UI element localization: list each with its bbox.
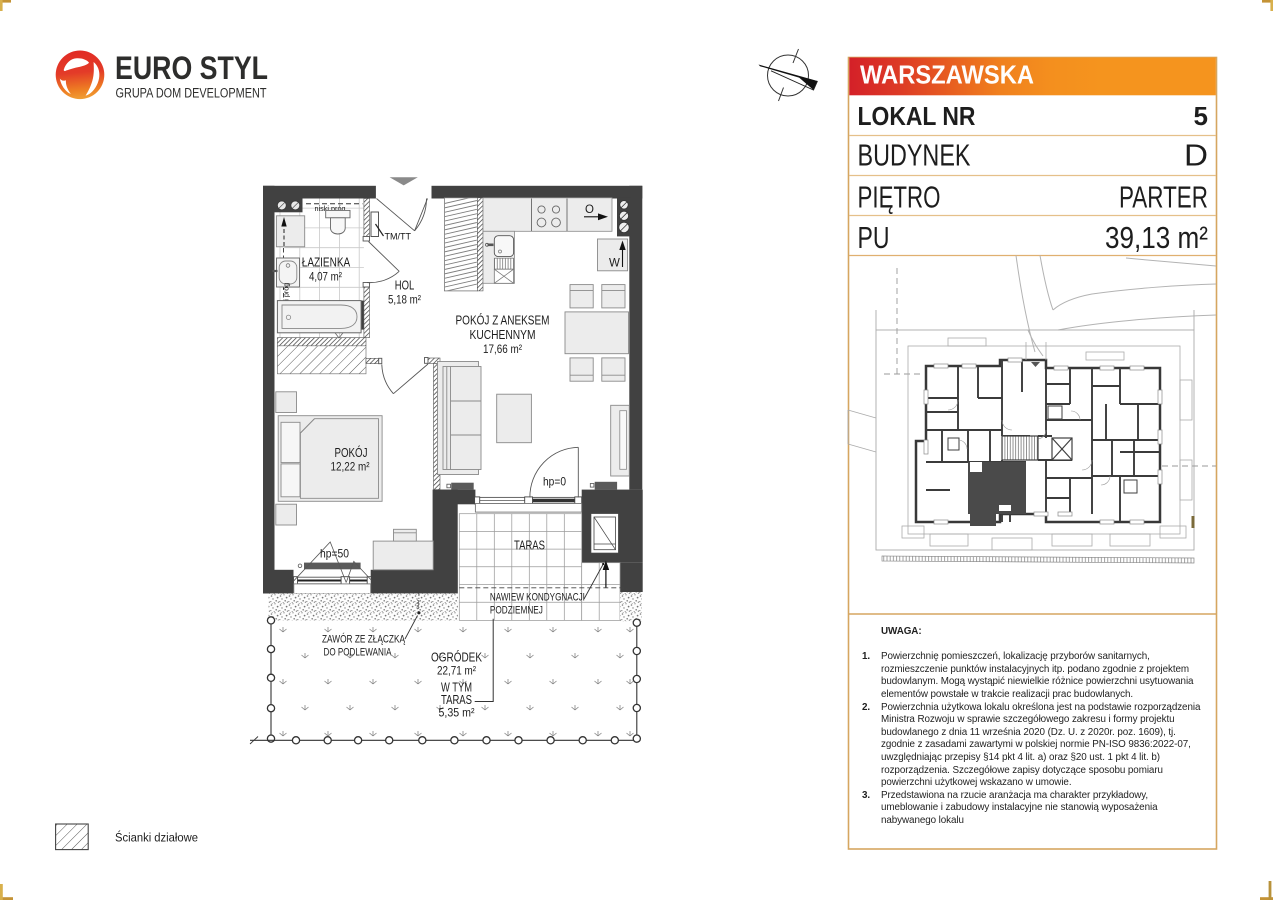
svg-text:12,22 m²: 12,22 m² [331,460,370,474]
svg-text:ŁAZIENKA: ŁAZIENKA [302,256,351,270]
svg-text:hp=0: hp=0 [543,475,566,489]
svg-text:TM/TT: TM/TT [385,232,412,242]
svg-text:GRUPA DOM DEVELOPMENT: GRUPA DOM DEVELOPMENT [116,86,267,102]
svg-text:PU: PU [858,220,890,255]
svg-text:POKÓJ Z ANEKSEM: POKÓJ Z ANEKSEM [456,313,550,328]
svg-text:PARTER: PARTER [1119,180,1208,215]
svg-text:NAWIEW KONDYGNACJI: NAWIEW KONDYGNACJI [490,592,585,604]
svg-text:DO PODLEWANIA: DO PODLEWANIA [324,647,393,659]
svg-text:LOKAL NR: LOKAL NR [858,101,976,131]
svg-text:EURO STYL: EURO STYL [115,50,268,86]
svg-text:OGRÓDEK: OGRÓDEK [431,650,482,665]
svg-text:Ścianki działowe: Ścianki działowe [115,830,198,845]
svg-text:WARSZAWSKA: WARSZAWSKA [860,60,1034,90]
svg-text:5,18 m²: 5,18 m² [388,293,421,307]
svg-text:5,35 m²: 5,35 m² [439,706,475,720]
svg-text:W: W [609,258,620,270]
svg-text:TARAS: TARAS [514,539,545,553]
svg-text:BUDYNEK: BUDYNEK [858,137,971,172]
svg-text:O: O [585,204,594,216]
svg-text:KUCHENNYM: KUCHENNYM [470,328,536,342]
svg-text:4,07 m²: 4,07 m² [309,270,342,284]
svg-text:HOL: HOL [395,279,415,293]
svg-text:POKÓJ: POKÓJ [335,445,368,460]
svg-text:D: D [1184,137,1208,172]
svg-text:17,66 m²: 17,66 m² [483,342,522,356]
svg-text:PODZIEMNEJ: PODZIEMNEJ [490,605,543,617]
svg-text:PIĘTRO: PIĘTRO [858,180,941,215]
svg-text:39,13 m²: 39,13 m² [1105,220,1208,255]
svg-text:hp=50: hp=50 [320,547,349,561]
svg-text:ZAWÓR ZE ZŁĄCZKĄ: ZAWÓR ZE ZŁĄCZKĄ [322,633,406,646]
svg-text:5: 5 [1194,101,1208,131]
svg-text:22,71 m²: 22,71 m² [437,664,476,678]
